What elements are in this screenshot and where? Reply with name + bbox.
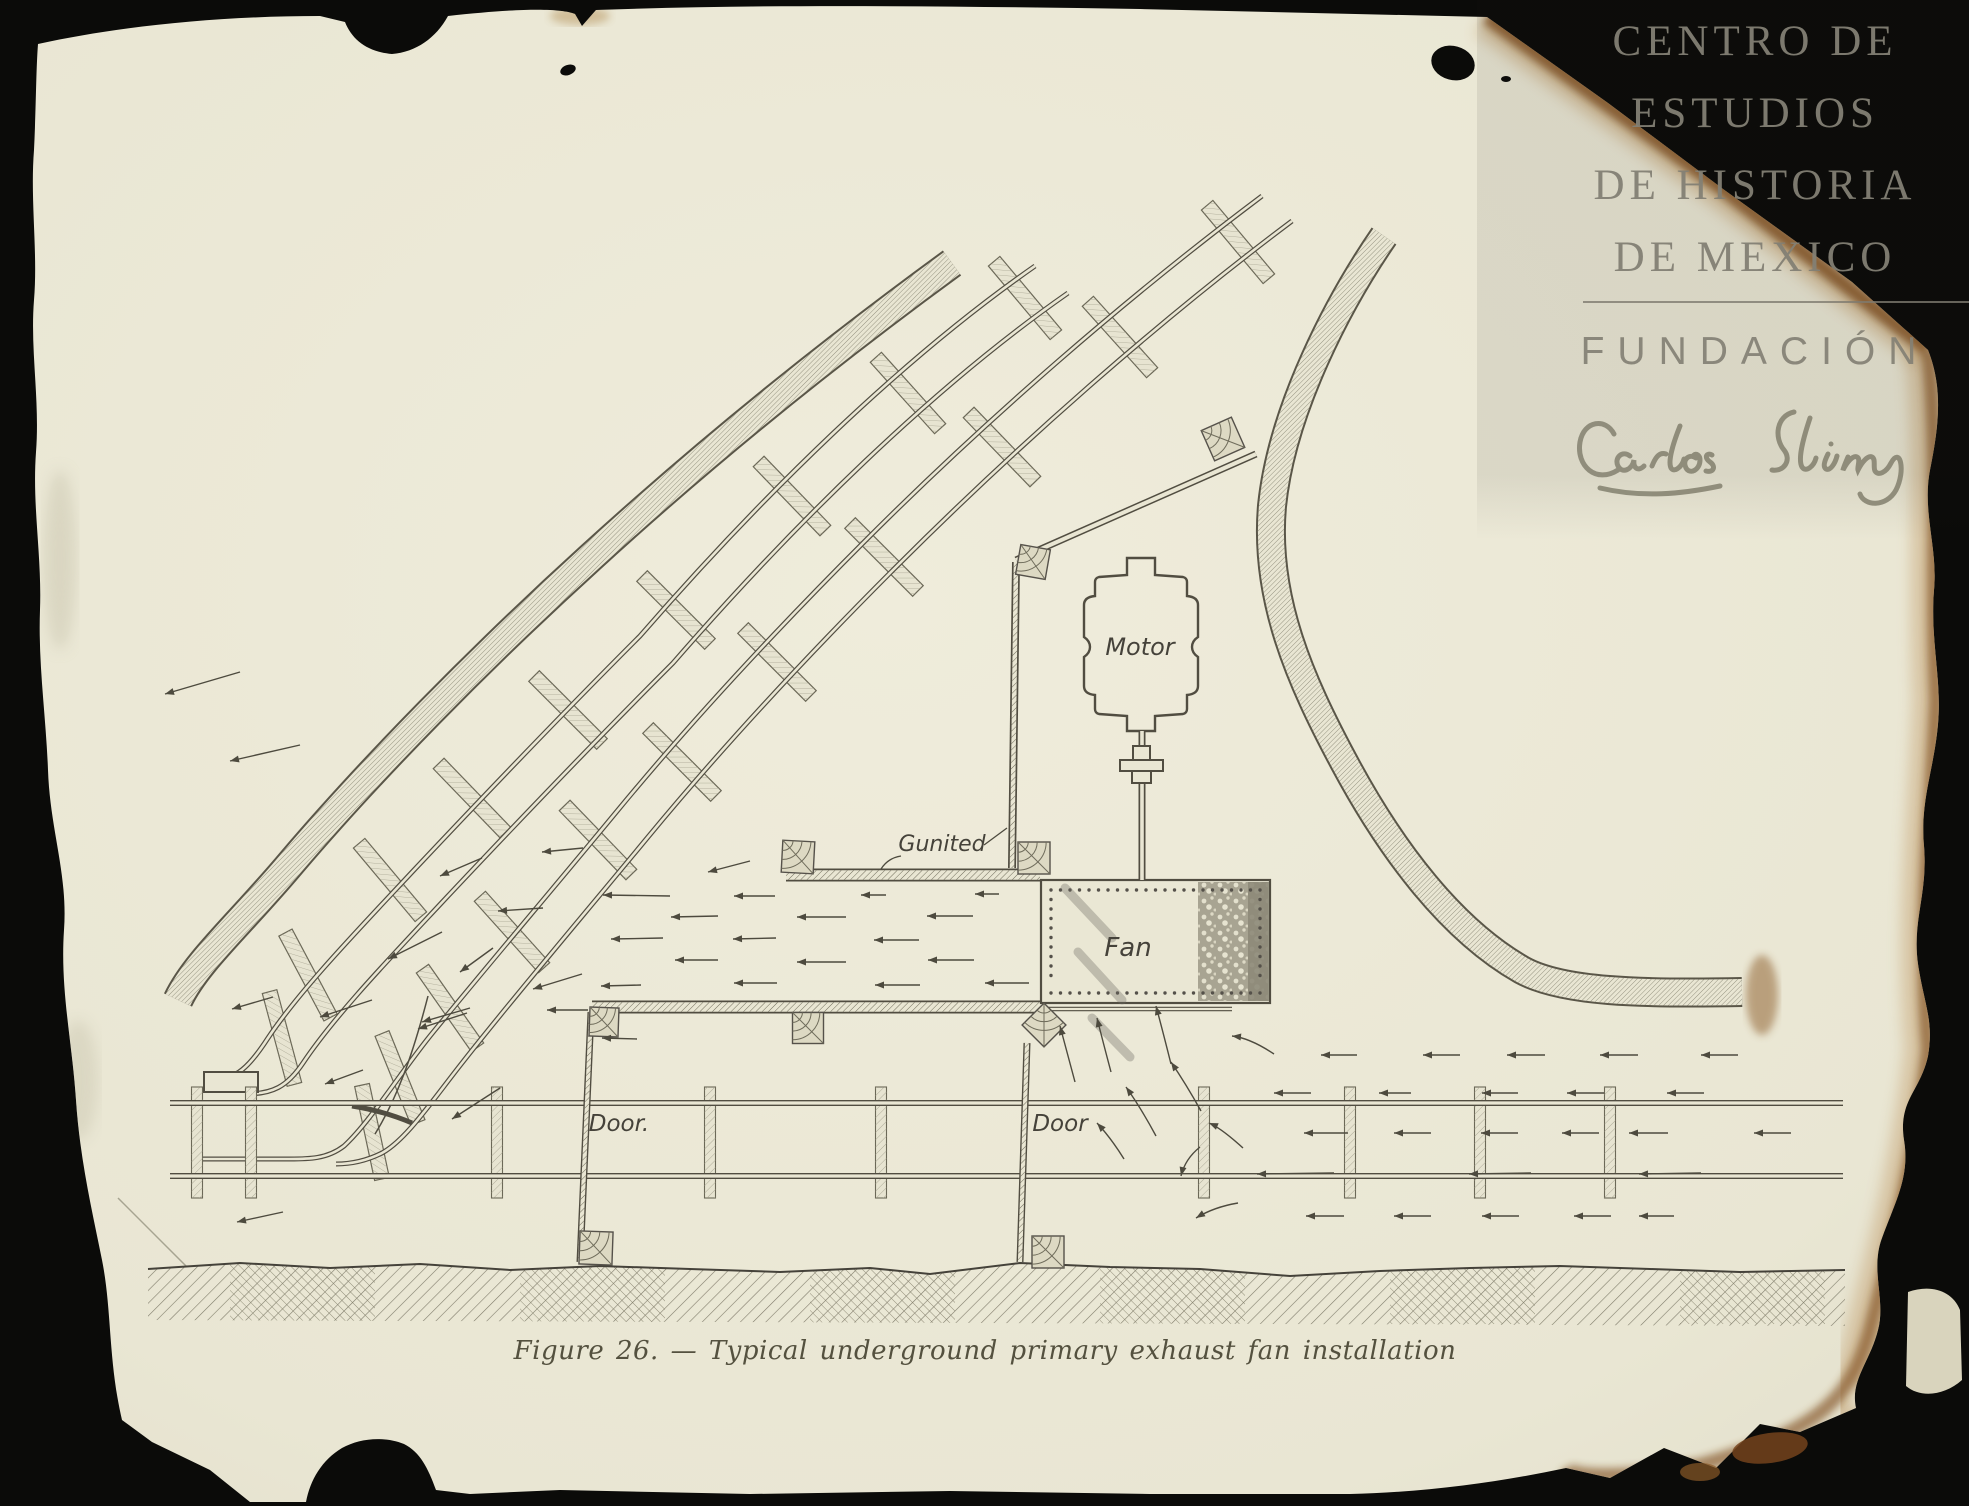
timber-post bbox=[793, 1013, 824, 1044]
timber-post bbox=[1032, 1236, 1064, 1268]
mine-floor bbox=[148, 1262, 1845, 1326]
scan-canvas: MotorFanGunitedDoor.Door bbox=[0, 0, 1969, 1506]
label-gunited: Gunited bbox=[898, 832, 986, 857]
label-door-left: Door. bbox=[589, 1111, 650, 1137]
figure-caption: Figure 26. — Typical underground primary… bbox=[500, 1336, 1470, 1366]
timber-post bbox=[589, 1007, 619, 1037]
timber-post bbox=[1016, 545, 1051, 580]
label-fan: Fan bbox=[1104, 933, 1151, 963]
timber-post bbox=[579, 1231, 613, 1265]
timber-post bbox=[781, 840, 815, 874]
label-door-right: Door bbox=[1032, 1111, 1089, 1137]
label-motor: Motor bbox=[1105, 633, 1176, 661]
timber-post bbox=[1018, 842, 1050, 874]
scanned-archive-page: MotorFanGunitedDoor.Door CENTRO DE ESTUD… bbox=[0, 0, 1969, 1506]
